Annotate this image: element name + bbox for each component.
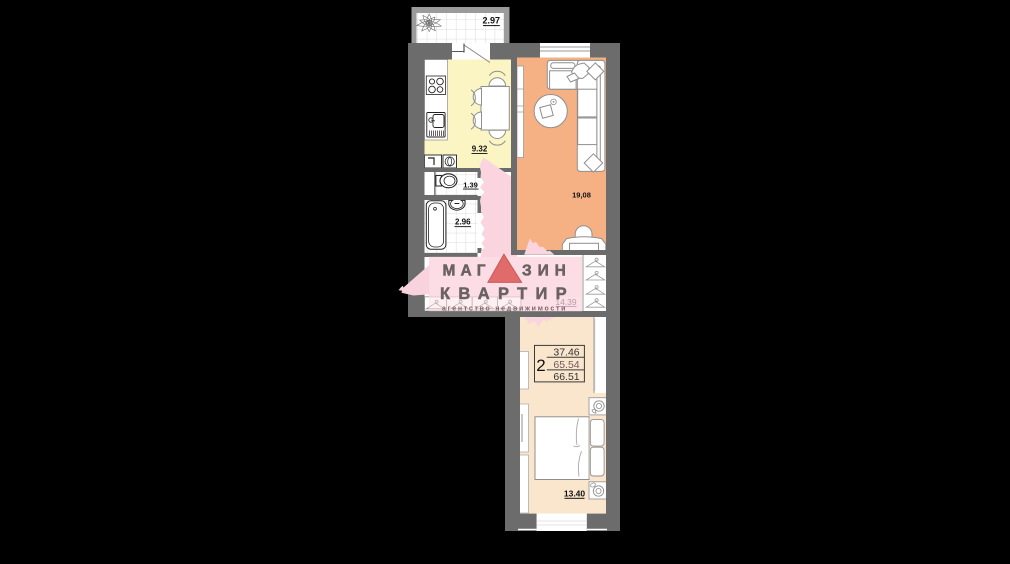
svg-text:агентство недвижимости: агентство недвижимости [442, 305, 567, 312]
svg-text:ЗИН: ЗИН [522, 263, 572, 280]
svg-text:МАГ: МАГ [443, 263, 491, 280]
svg-text:2.97: 2.97 [483, 16, 501, 26]
svg-text:66.51: 66.51 [553, 371, 579, 383]
svg-text:9.32: 9.32 [472, 145, 488, 154]
svg-text:65.54: 65.54 [553, 359, 579, 371]
svg-text:КВАРТИР: КВАРТИР [440, 285, 575, 303]
svg-text:1.39: 1.39 [463, 180, 478, 189]
svg-text:2.96: 2.96 [455, 218, 471, 227]
svg-text:2: 2 [536, 356, 545, 375]
svg-text:13.40: 13.40 [564, 489, 586, 499]
svg-text:37.46: 37.46 [553, 346, 579, 358]
svg-text:19,08: 19,08 [572, 190, 591, 199]
